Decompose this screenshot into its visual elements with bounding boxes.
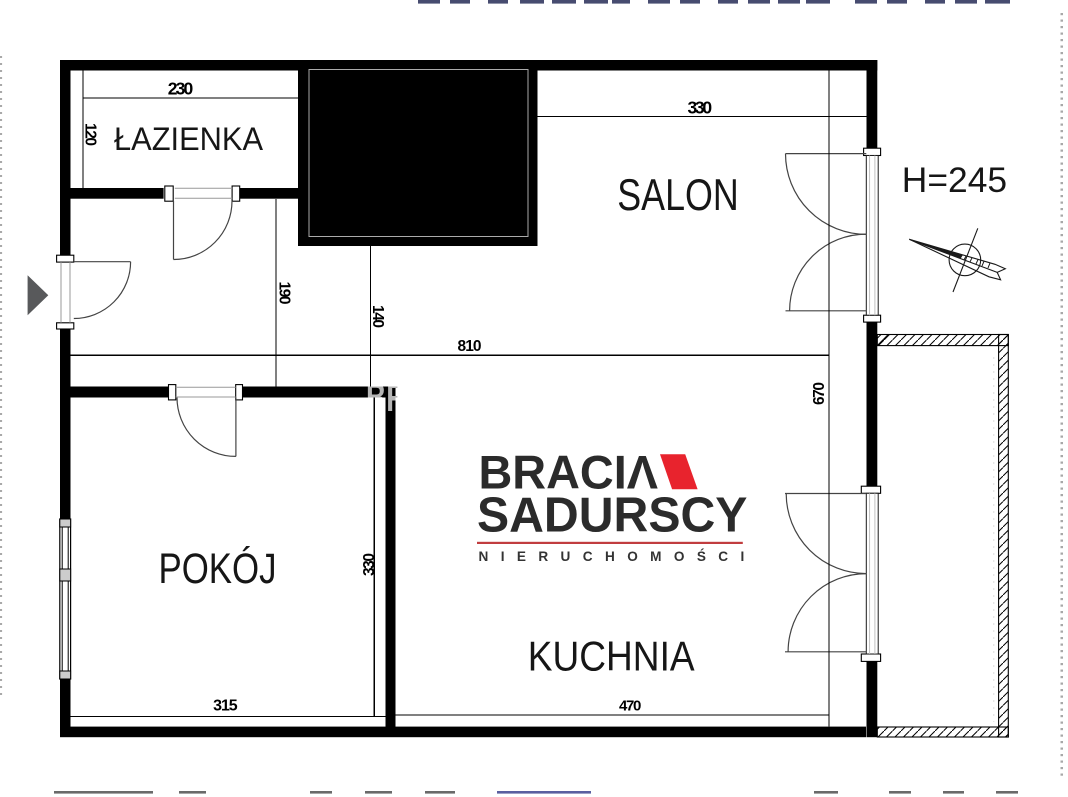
svg-text:330: 330 [361,553,378,576]
svg-text:POKÓJ: POKÓJ [159,545,277,593]
svg-text:315: 315 [213,698,238,715]
svg-text:KUCHNIA: KUCHNIA [528,633,695,680]
svg-text:SADURSCY: SADURSCY [477,488,747,543]
svg-text:120: 120 [81,123,98,146]
svg-text:470: 470 [619,697,641,714]
svg-text:140: 140 [369,305,386,328]
svg-text:SALON: SALON [617,171,738,220]
svg-text:H=245: H=245 [902,161,1007,200]
svg-text:230: 230 [168,79,194,99]
svg-text:NIERUCHOMOŚCI: NIERUCHOMOŚCI [479,549,745,564]
svg-text:ŁAZIENKA: ŁAZIENKA [114,121,264,157]
svg-text:810: 810 [458,338,482,355]
svg-text:670: 670 [811,382,828,405]
svg-text:190: 190 [276,282,293,305]
svg-text:330: 330 [688,97,713,117]
